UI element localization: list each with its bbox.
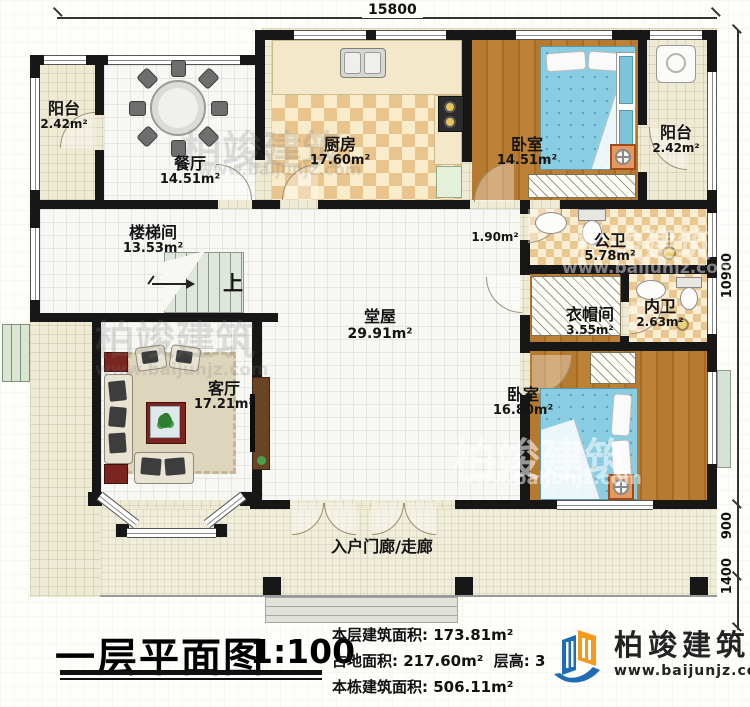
room-label-cloakroom: 衣帽间3.55m² <box>566 306 614 338</box>
shower-stem <box>668 232 670 248</box>
stair-arrow-line <box>152 283 190 285</box>
wall <box>255 30 265 65</box>
wall <box>520 265 717 274</box>
entry-steps <box>265 597 458 623</box>
wall <box>620 265 629 302</box>
window <box>707 72 717 190</box>
stat-total-area: 本栋建筑面积: 506.11m² <box>332 676 513 697</box>
wardrobe <box>590 352 636 384</box>
flower-window-line <box>11 324 12 382</box>
right-dimension-porch: 900 <box>720 512 735 539</box>
room-label-public-bath: 公卫5.78m² <box>584 232 635 265</box>
wall <box>638 172 647 205</box>
entry-step-line <box>265 606 458 607</box>
porch-column <box>455 577 473 595</box>
pillow <box>611 393 633 436</box>
porch-column <box>690 577 708 595</box>
bed-fold <box>540 419 606 500</box>
entry-step-line <box>265 615 458 616</box>
room-label-living: 客厅17.21m² <box>194 380 254 413</box>
wall <box>255 65 265 160</box>
window <box>376 30 446 40</box>
brand-text-block: 柏竣建筑 www.baijunjz.com <box>614 630 750 679</box>
corridor-area-label: 1.90m² <box>471 231 518 245</box>
window <box>707 372 717 464</box>
plant <box>257 456 266 465</box>
sofa-bottom <box>134 452 194 484</box>
fridge <box>436 166 462 198</box>
title-underline-thin <box>60 678 322 680</box>
window <box>707 213 717 257</box>
brand-url: www.baijunjz.com <box>614 663 750 679</box>
kitchen-sink-basin <box>364 52 381 74</box>
wall <box>30 200 218 209</box>
bedside-stool <box>608 474 634 500</box>
wall <box>318 200 470 209</box>
washing-machine-door <box>666 53 686 73</box>
stat-site-area: 占地面积: 217.60m² 层高: 3 <box>332 650 545 671</box>
dining-chair <box>211 101 228 116</box>
pillow <box>545 51 586 73</box>
dining-table <box>150 80 206 136</box>
right-dimension-line <box>737 30 739 630</box>
window <box>707 278 717 334</box>
bedside-stool <box>610 144 636 170</box>
wall <box>620 336 629 345</box>
window <box>650 30 702 40</box>
brand-logo-icon <box>548 624 610 692</box>
bed-side-cushion <box>619 56 633 104</box>
end-table <box>104 464 128 484</box>
stove-burner <box>444 101 456 113</box>
window-bay-right <box>717 370 731 468</box>
wardrobe <box>528 174 636 198</box>
window <box>557 500 653 510</box>
stair-arrow-head <box>186 279 195 289</box>
wall <box>520 342 717 351</box>
room-label-private-bath: 内卫2.63m² <box>636 298 683 330</box>
window <box>30 78 40 190</box>
stat-floor-area: 本层建筑面积: 173.81m² <box>332 624 513 645</box>
room-label-porch: 入户门廊/走廊 <box>331 538 433 556</box>
room-label-kitchen: 厨房17.60m² <box>310 136 370 169</box>
wall <box>252 322 262 377</box>
room-label-balcony-right: 阳台2.42m² <box>652 124 699 156</box>
floor-plan-canvas: 15800 10900 900 1400 <box>0 0 750 707</box>
plant <box>158 414 172 428</box>
dining-chair <box>129 101 146 116</box>
bay-window <box>127 528 216 538</box>
dining-chair <box>171 60 186 77</box>
wall <box>252 200 280 209</box>
top-dimension-label: 15800 <box>362 2 423 18</box>
wall <box>95 65 104 115</box>
wall <box>30 313 278 322</box>
room-label-stairwell: 楼梯间13.53m² <box>123 224 183 257</box>
end-table <box>104 352 128 372</box>
sofa-left <box>104 374 133 464</box>
shower-head <box>662 246 676 260</box>
window <box>294 30 366 40</box>
title-underline <box>60 670 322 675</box>
wall <box>92 322 101 500</box>
wall <box>653 500 717 509</box>
bath-sink <box>535 212 567 234</box>
wall <box>638 40 647 125</box>
window <box>516 30 612 40</box>
wall <box>95 150 104 205</box>
room-label-bedroom-bottom: 卧室16.80m² <box>493 386 553 419</box>
room-label-bedroom-top: 卧室14.51m² <box>497 136 557 169</box>
kitchen-sink-basin <box>344 52 361 74</box>
window <box>30 228 40 300</box>
flower-window <box>2 324 30 382</box>
room-label-balcony-left: 阳台2.42m² <box>40 100 87 132</box>
brand-name: 柏竣建筑 <box>614 630 750 660</box>
room-label-hall: 堂屋29.91m² <box>347 308 412 342</box>
brand-logo-svg <box>548 624 610 692</box>
dimension-tick <box>53 7 63 17</box>
armchair <box>134 344 167 372</box>
right-dimension-steps: 1400 <box>720 558 735 594</box>
stairs-up-label: 上 <box>223 272 243 295</box>
armchair <box>168 344 201 372</box>
porch-column <box>263 577 281 595</box>
wall <box>455 500 557 509</box>
stove-burner <box>444 116 456 128</box>
room-label-dining: 餐厅14.51m² <box>160 155 220 188</box>
hall-floor <box>262 209 520 500</box>
window <box>44 55 86 65</box>
flower-window-line <box>20 324 21 382</box>
dimension-tick <box>711 7 721 17</box>
right-dimension-main: 10900 <box>720 253 735 298</box>
